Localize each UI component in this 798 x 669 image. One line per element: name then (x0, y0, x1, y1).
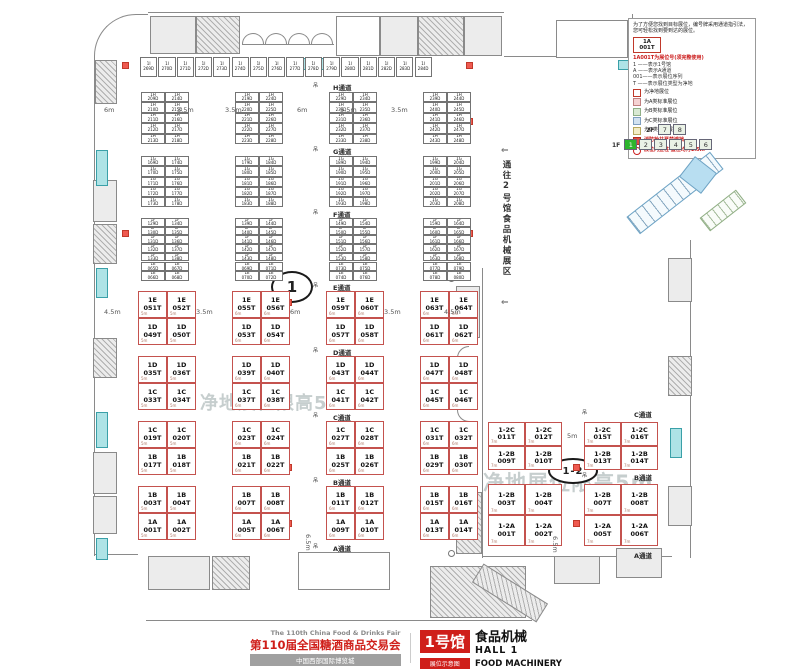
booth-1H-219D: 1H219D (235, 92, 259, 102)
booth-number: 170D (148, 171, 159, 176)
booth-1D-040T: 1D040T6m (261, 356, 290, 383)
booth-1A-009T: 1A009T6m (326, 513, 355, 540)
booth-1H-241D: 1H241D (423, 113, 447, 123)
booth-1G-192D: 1G192D (329, 187, 353, 197)
booth-number: 005T (593, 531, 611, 538)
structural-column (448, 550, 455, 557)
booth-1H-225D: 1H225D (259, 102, 283, 112)
booth-1G-190D: 1G190D (329, 166, 353, 176)
booth-number: 237D (360, 128, 371, 133)
booth-depth-label: 6m (235, 404, 241, 408)
aisle-label: A通道 (333, 543, 351, 553)
booth-1F-153D: 1F153D (329, 253, 353, 262)
booth-depth-label: 6m (358, 534, 364, 538)
booth-1B-017T: 1B017T5m (138, 448, 167, 475)
aisle-label: G通道 (333, 146, 351, 156)
booth-1D-058T: 1D058T6m (355, 318, 384, 345)
fire-hydrant-icon (573, 464, 580, 471)
booth-1G-207D: 1G207D (447, 187, 471, 197)
booth-1-2B-014T: 1-2B014T7m (621, 446, 658, 470)
floor-hall-tab-5[interactable]: 5 (684, 139, 697, 150)
booth-depth-label: 5m (141, 442, 147, 446)
booth-number: 214D (172, 97, 183, 102)
booth-1D-035T: 1D035T5m (138, 356, 167, 383)
booth-depth-label: 6m (358, 312, 364, 316)
floor-selector: 2F 78 1F 123456 (612, 124, 712, 154)
booth-number: 011T (497, 434, 515, 441)
floor-2f-label: 2F (646, 127, 654, 134)
booth-depth-label: 7m (587, 440, 593, 444)
booth-depth-label: 5m (141, 469, 147, 473)
dimension-label: 6m (297, 106, 307, 114)
booth-1I-274D: 1I274D (232, 57, 249, 77)
booth-depth-label: 7m (624, 540, 630, 544)
facility-room (336, 16, 380, 56)
legend-item-label: 为A类标准展位 (644, 99, 677, 105)
booth-1F-154D: 1F154D (353, 218, 377, 227)
booth-1I-275D: 1I275D (250, 57, 267, 77)
booth-number: 198D (360, 202, 371, 207)
booth-1I-283D: 1I283D (396, 57, 413, 77)
sample-booth-code: 1A 001T (633, 37, 661, 53)
booth-1C-031T: 1C031T6m (420, 421, 449, 448)
booth-1E-069D: 1E069D (235, 262, 259, 271)
booth-1F-160D: 1F160D (423, 227, 447, 236)
sample-code-line2: 001T (635, 45, 659, 51)
booth-number: 229D (336, 97, 347, 102)
hoist-point-symbol: 吊 (313, 477, 318, 484)
code-explain-line: T ——表示展位类型为净地 (633, 81, 751, 87)
booth-number: 241D (430, 118, 441, 123)
booth-number: 072D (266, 276, 277, 281)
booth-1C-046T: 1C046T6m (449, 383, 478, 410)
booth-1G-174D: 1G174D (165, 156, 189, 166)
booth-1I-276D: 1I276D (268, 57, 285, 77)
booth-1F-150D: 1F150D (329, 227, 353, 236)
booth-number: 001T (497, 531, 515, 538)
booth-number: 277D (290, 67, 301, 72)
booth-depth-label: 7m (528, 540, 534, 544)
booth-1G-199D: 1G199D (423, 156, 447, 166)
booth-1D-053T: 1D053T6m (232, 318, 261, 345)
booth-number: 221D (242, 118, 253, 123)
booth-depth-label: 6m (423, 442, 429, 446)
booth-1-2B-010T: 1-2B010T7m (525, 446, 562, 470)
booth-number: 225D (266, 108, 277, 113)
floor-1f-label: 1F (612, 142, 620, 149)
dimension-label: 6.5m (304, 534, 312, 551)
booth-number: 208D (454, 202, 465, 207)
booth-1G-170D: 1G170D (141, 166, 165, 176)
booth-number: 158D (360, 257, 371, 261)
booth-1H-226D: 1H226D (259, 113, 283, 123)
booth-depth-label: 6m (329, 442, 335, 446)
booth-depth-label: 6m (329, 312, 335, 316)
booth-depth-label: 5m (170, 312, 176, 316)
booth-depth-label: 7m (587, 509, 593, 513)
booth-number: 244D (454, 97, 465, 102)
booth-depth-label: 6m (358, 469, 364, 473)
booth-1F-143D: 1F143D (235, 253, 259, 262)
wall-segment (242, 44, 334, 45)
booth-1G-180D: 1G180D (235, 166, 259, 176)
facility-room (95, 60, 117, 104)
booth-number: 270D (162, 67, 173, 72)
booth-1H-233D: 1H233D (329, 134, 353, 144)
booth-1I-279D: 1I279D (323, 57, 340, 77)
aisle-label: H通道 (333, 82, 351, 92)
booth-depth-label: 6m (329, 404, 335, 408)
booth-depth-label: 6m (358, 404, 364, 408)
booth-depth-label: 7m (491, 509, 497, 513)
booth-1F-155D: 1F155D (353, 227, 377, 236)
fair-name-en: The 110th China Food & Drinks Fair (250, 629, 401, 637)
booth-1G-175D: 1G175D (165, 166, 189, 176)
booth-1B-003T: 1B003T5m (138, 486, 167, 513)
hall-badge: 1号馆 (420, 630, 470, 653)
booth-1G-194D: 1G194D (353, 156, 377, 166)
booth-1F-145D: 1F145D (259, 227, 283, 236)
booth-depth-label: 5m (170, 442, 176, 446)
legend-swatch-icon (633, 98, 641, 106)
booth-depth-label: 5m (170, 404, 176, 408)
facility-room (93, 338, 117, 378)
booth-1E-059T: 1E059T6m (326, 291, 355, 318)
booth-number: 224D (266, 97, 277, 102)
booth-number: 242D (430, 128, 441, 133)
legend-swatch-icon (633, 89, 641, 97)
booth-1G-176D: 1G176D (165, 177, 189, 187)
booth-number: 216D (172, 118, 183, 123)
booth-number: 233D (336, 139, 347, 144)
booth-1G-179D: 1G179D (235, 156, 259, 166)
facility-room (418, 16, 464, 56)
booth-depth-label: 6m (423, 339, 429, 343)
booth-number: 212D (148, 128, 159, 133)
booth-1C-045T: 1C045T6m (420, 383, 449, 410)
booth-depth-label: 6m (329, 469, 335, 473)
booth-depth-label: 6m (423, 534, 429, 538)
booth-1E-077D: 1E077D (423, 262, 447, 271)
booth-1C-033T: 1C033T5m (138, 383, 167, 410)
booth-number: 008T (630, 500, 648, 507)
hall-name-en: HALL 1 (475, 645, 562, 656)
booth-depth-label: 6m (452, 339, 458, 343)
booth-1D-054T: 1D054T6m (261, 318, 290, 345)
booth-1C-019T: 1C019T5m (138, 421, 167, 448)
booth-number: 187D (266, 192, 277, 197)
wall-segment (482, 268, 483, 558)
booth-1H-231D: 1H231D (329, 113, 353, 123)
booth-1F-135D: 1F135D (165, 227, 189, 236)
booth-1H-227D: 1H227D (259, 123, 283, 133)
floor-hall-tab-6[interactable]: 6 (699, 139, 712, 150)
booth-number: 192D (336, 192, 347, 197)
facility-room (93, 496, 117, 534)
booth-depth-label: 7m (491, 540, 497, 544)
corridor-to-hall2-label: 通往2号馆食品机械展区 (500, 160, 512, 296)
booth-1G-181D: 1G181D (235, 177, 259, 187)
booth-number: 202D (430, 192, 441, 197)
booth-1E-055T: 1E055T6m (232, 291, 261, 318)
service-point (96, 412, 108, 448)
booth-1-2C-012T: 1-2C012T7m (525, 422, 562, 446)
facility-room (93, 452, 117, 494)
booth-1E-070D: 1E070D (235, 271, 259, 280)
booth-1F-147D: 1F147D (259, 244, 283, 253)
booth-number: 007T (593, 500, 611, 507)
facility-room (464, 16, 502, 56)
booth-number: 013T (593, 458, 611, 465)
legend-swatch-icon (633, 108, 641, 116)
booth-1B-004T: 1B004T5m (167, 486, 196, 513)
booth-1-2B-013T: 1-2B013T7m (584, 446, 621, 470)
booth-depth-label: 5m (170, 339, 176, 343)
booth-number: 199D (430, 161, 441, 166)
booth-1B-007T: 1B007T6m (232, 486, 261, 513)
facility-room (93, 224, 117, 264)
booth-1D-043T: 1D043T6m (326, 356, 355, 383)
booth-1G-189D: 1G189D (329, 156, 353, 166)
booth-number: 168D (454, 257, 465, 261)
hoist-point-symbol: 吊 (313, 282, 318, 289)
hoist-point-symbol: 吊 (313, 347, 318, 354)
booth-number: 275D (253, 67, 264, 72)
booth-number: 133D (148, 257, 159, 261)
booth-1H-244D: 1H244D (447, 92, 471, 102)
booth-depth-label: 6m (452, 442, 458, 446)
booth-1G-203D: 1G203D (423, 197, 447, 207)
booth-1B-025T: 1B025T6m (326, 448, 355, 475)
booth-number: 234D (360, 97, 371, 102)
booth-1F-139D: 1F139D (235, 218, 259, 227)
booth-number: 148D (266, 257, 277, 261)
booth-1C-020T: 1C020T5m (167, 421, 196, 448)
booth-number: 200D (430, 171, 441, 176)
wall-segment (148, 12, 504, 13)
legend-item: 为A类标准展位 (633, 98, 751, 106)
booth-depth-label: 6m (264, 404, 270, 408)
booth-1-2C-015T: 1-2C015T7m (584, 422, 621, 446)
booth-1F-152D: 1F152D (329, 244, 353, 253)
service-point (96, 268, 108, 298)
booth-1B-026T: 1B026T6m (355, 448, 384, 475)
booth-number: 246D (454, 118, 465, 123)
booth-number: 016T (630, 434, 648, 441)
legend-item: 为B类标准展位 (633, 108, 751, 116)
facility-room (212, 556, 250, 590)
booth-1D-061T: 1D061T6m (420, 318, 449, 345)
booth-1H-209D: 1H209D (141, 92, 165, 102)
booth-1E-065D: 1E065D (141, 262, 165, 271)
floor-hall-tab-4[interactable]: 4 (669, 139, 682, 150)
fire-hydrant-icon (122, 230, 129, 237)
booth-depth-label: 5m (141, 404, 147, 408)
booth-number: 228D (266, 139, 277, 144)
booth-number: 247D (454, 128, 465, 133)
booth-1F-138D: 1F138D (165, 253, 189, 262)
booth-number: 190D (336, 171, 347, 176)
booth-1F-151D: 1F151D (329, 235, 353, 244)
booth-number: 014T (630, 458, 648, 465)
booth-1F-167D: 1F167D (447, 244, 471, 253)
booth-number: 179D (242, 161, 253, 166)
booth-number: 003T (497, 500, 515, 507)
floor-hall-tab-1[interactable]: 1 (624, 139, 637, 150)
booth-1E-066D: 1E066D (141, 271, 165, 280)
booth-number: 245D (454, 108, 465, 113)
booth-number: 232D (336, 128, 347, 133)
booth-1G-191D: 1G191D (329, 177, 353, 187)
booth-1-2C-011T: 1-2C011T7m (488, 422, 525, 446)
booth-1I-280D: 1I280D (341, 57, 358, 77)
booth-depth-label: 6m (264, 339, 270, 343)
floor-hall-tab-2[interactable]: 2 (639, 139, 652, 150)
legend-item-label: 为B类标准展位 (644, 108, 677, 114)
booth-depth-label: 6m (329, 507, 335, 511)
booth-1D-057T: 1D057T6m (326, 318, 355, 345)
fire-hydrant-icon (573, 520, 580, 527)
booth-number: 194D (360, 161, 371, 166)
dimension-label: 5m (567, 432, 577, 440)
booth-number: 066D (148, 276, 159, 281)
booth-number: 191D (336, 182, 347, 187)
booth-number: 184D (266, 161, 277, 166)
booth-depth-label: 6m (423, 404, 429, 408)
booth-1A-013T: 1A013T6m (420, 513, 449, 540)
booth-number: 223D (242, 139, 253, 144)
booth-number: 182D (242, 192, 253, 197)
booth-depth-label: 5m (141, 312, 147, 316)
floor-hall-tab-3[interactable]: 3 (654, 139, 667, 150)
booth-number: 276D (271, 67, 282, 72)
door-swing-arc (311, 33, 333, 44)
booth-1F-158D: 1F158D (353, 253, 377, 262)
booth-number: 153D (336, 257, 347, 261)
booth-number: 074D (336, 276, 347, 281)
booth-1E-072D: 1E072D (259, 271, 283, 280)
booth-depth-label: 7m (528, 509, 534, 513)
booth-1B-012T: 1B012T6m (355, 486, 384, 513)
booth-1I-273D: 1I273D (213, 57, 230, 77)
booth-depth-label: 7m (587, 464, 593, 468)
booth-number: 206D (454, 182, 465, 187)
booth-depth-label: 6m (264, 507, 270, 511)
floor-2f-halls: 78 (658, 124, 686, 135)
fair-name-cn: 第110届全国糖酒商品交易会 (250, 637, 401, 653)
booth-1E-071D: 1E071D (259, 262, 283, 271)
booth-number: 279D (326, 67, 337, 72)
booth-1G-196D: 1G196D (353, 177, 377, 187)
booth-1H-243D: 1H243D (423, 134, 447, 144)
legend-item: 为净地展位 (633, 89, 751, 97)
booth-number: 163D (430, 257, 441, 261)
booth-1D-047T: 1D047T6m (420, 356, 449, 383)
wall-segment (146, 620, 532, 621)
floor-hall-tab-7[interactable]: 7 (658, 124, 671, 135)
booth-depth-label: 6m (264, 534, 270, 538)
booth-number: 231D (336, 118, 347, 123)
booth-1F-130D: 1F130D (141, 227, 165, 236)
booth-1F-168D: 1F168D (447, 253, 471, 262)
booth-1G-195D: 1G195D (353, 166, 377, 176)
booth-1I-270D: 1I270D (158, 57, 175, 77)
booth-1H-229D: 1H229D (329, 92, 353, 102)
booth-depth-label: 6m (235, 442, 241, 446)
booth-1F-157D: 1F157D (353, 244, 377, 253)
booth-number: 186D (266, 182, 277, 187)
booth-1F-129D: 1F129D (141, 218, 165, 227)
hall-name-en2: FOOD MACHINERY (475, 659, 562, 669)
booth-1C-037T: 1C037T6m (232, 383, 261, 410)
booth-1E-052T: 1E052T5m (167, 291, 196, 318)
booth-number: 076D (360, 276, 371, 281)
booth-1-2A-005T: 1-2A005T7m (584, 515, 621, 546)
booth-1H-247D: 1H247D (447, 123, 471, 133)
hoist-point-symbol: 吊 (313, 543, 318, 550)
booth-1E-051T: 1E051T5m (138, 291, 167, 318)
facility-room (150, 16, 196, 54)
booth-1I-284D: 1I284D (415, 57, 432, 77)
booth-1H-216D: 1H216D (165, 113, 189, 123)
hoist-point-symbol: 吊 (313, 82, 318, 89)
booth-number: 240D (430, 108, 441, 113)
booth-number: 281D (363, 67, 374, 72)
booth-1B-022T: 1B022T6m (261, 448, 290, 475)
booth-1F-164D: 1F164D (447, 218, 471, 227)
booth-number: 274D (235, 67, 246, 72)
facility-room (668, 356, 692, 396)
booth-number: 196D (360, 182, 371, 187)
booth-1B-011T: 1B011T6m (326, 486, 355, 513)
booth-1G-193D: 1G193D (329, 197, 353, 207)
booth-number: 209D (148, 97, 159, 102)
booth-1C-038T: 1C038T6m (261, 383, 290, 410)
booth-1G-200D: 1G200D (423, 166, 447, 176)
dimension-label: 3.5m (384, 308, 401, 316)
booth-number: 197D (360, 192, 371, 197)
booth-1E-056T: 1E056T6m (261, 291, 290, 318)
booth-1E-075D: 1E075D (353, 262, 377, 271)
booth-1H-228D: 1H228D (259, 134, 283, 144)
booth-1G-206D: 1G206D (447, 177, 471, 187)
venue-name: 中国西部国际博览城 (250, 654, 401, 666)
booth-depth-label: 6m (235, 339, 241, 343)
facility-room (298, 552, 390, 590)
booth-1H-245D: 1H245D (447, 102, 471, 112)
facility-room (196, 16, 240, 54)
booth-1I-271D: 1I271D (177, 57, 194, 77)
floor-hall-tab-8[interactable]: 8 (673, 124, 686, 135)
booth-1F-148D: 1F148D (259, 253, 283, 262)
booth-1D-044T: 1D044T6m (355, 356, 384, 383)
booth-1-2A-006T: 1-2A006T7m (621, 515, 658, 546)
booth-1F-165D: 1F165D (447, 227, 471, 236)
booth-depth-label: 6m (423, 507, 429, 511)
booth-1H-222D: 1H222D (235, 123, 259, 133)
booth-1D-062T: 1D062T6m (449, 318, 478, 345)
booth-1F-166D: 1F166D (447, 235, 471, 244)
booth-1F-137D: 1F137D (165, 244, 189, 253)
booth-1G-177D: 1G177D (165, 187, 189, 197)
booth-1-2B-004T: 1-2B004T7m (525, 484, 562, 515)
booth-depth-label: 5m (141, 534, 147, 538)
booth-1F-163D: 1F163D (423, 253, 447, 262)
booth-depth-label: 6m (235, 534, 241, 538)
dimension-label: 4.5m (104, 308, 121, 316)
booth-1D-048T: 1D048T6m (449, 356, 478, 383)
booth-number: 201D (430, 182, 441, 187)
